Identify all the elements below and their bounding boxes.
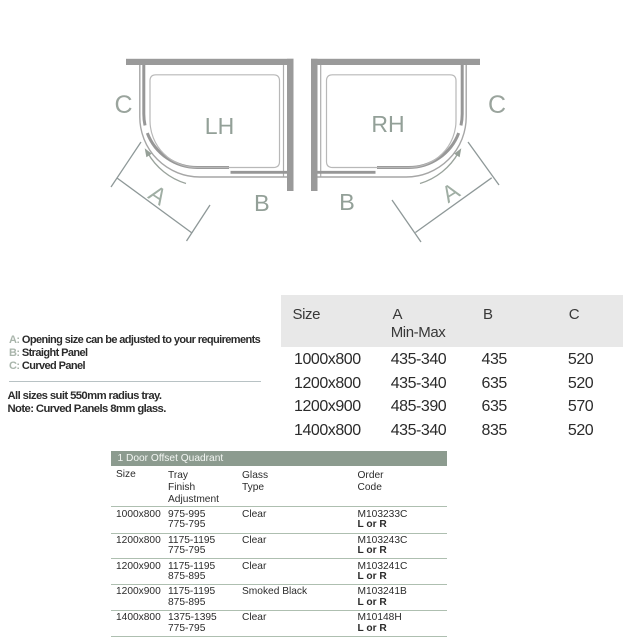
svg-text:A: A: [437, 177, 464, 208]
svg-text:LH: LH: [205, 113, 234, 139]
svg-text:B: B: [254, 190, 270, 216]
svg-text:RH: RH: [371, 111, 404, 137]
svg-text:B: B: [339, 189, 355, 215]
svg-text:A: A: [144, 180, 172, 211]
svg-text:C: C: [114, 91, 132, 119]
svg-text:C: C: [488, 91, 506, 119]
